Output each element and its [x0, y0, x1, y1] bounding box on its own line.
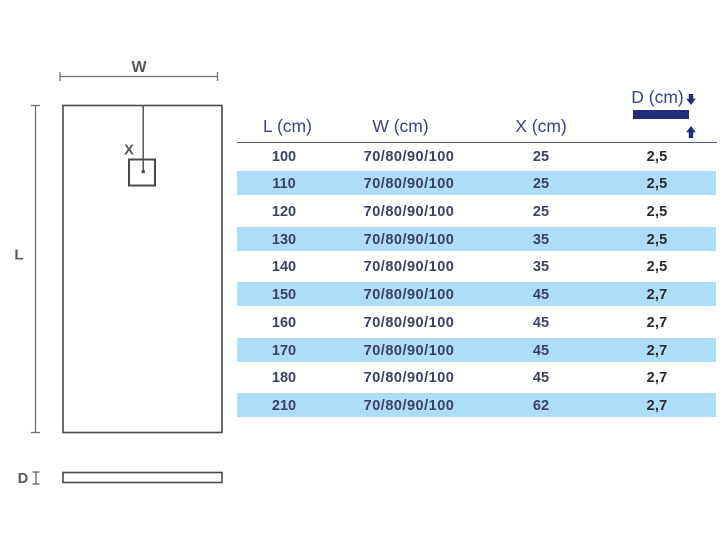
- svg-text:L: L: [14, 247, 23, 264]
- svg-text:D: D: [18, 471, 28, 487]
- svg-text:X: X: [124, 143, 134, 159]
- svg-text:W: W: [131, 59, 147, 76]
